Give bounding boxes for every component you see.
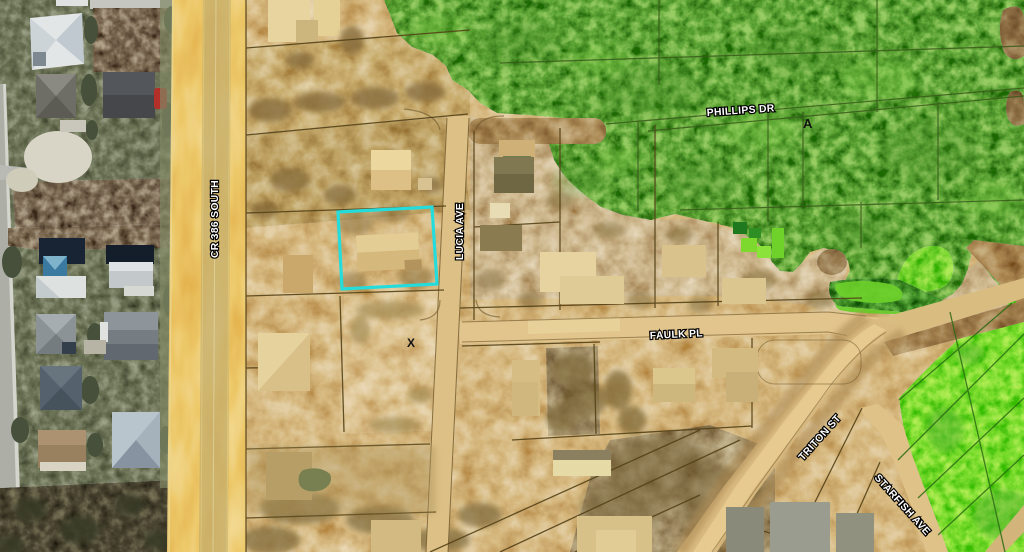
svg-text:LUCIA AVE: LUCIA AVE [455,203,466,260]
svg-text:CR 386 SOUTH: CR 386 SOUTH [210,180,221,258]
svg-text:A: A [803,116,813,131]
svg-text:X: X [407,336,415,350]
